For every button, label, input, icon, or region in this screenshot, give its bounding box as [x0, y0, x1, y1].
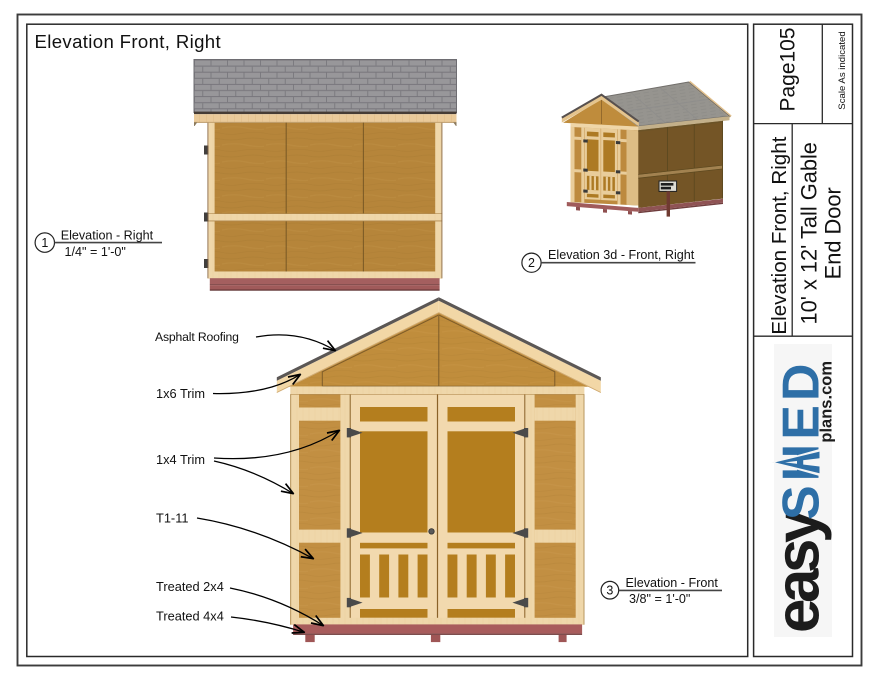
- svg-text:1x4 Trim: 1x4 Trim: [156, 452, 205, 467]
- svg-text:3/8" = 1'-0": 3/8" = 1'-0": [629, 592, 690, 606]
- svg-text:Treated 4x4: Treated 4x4: [156, 609, 224, 624]
- svg-text:1x6 Trim: 1x6 Trim: [156, 386, 205, 401]
- svg-text:10' x 12' Tall Gable: 10' x 12' Tall Gable: [797, 142, 822, 324]
- svg-text:Elevation 3d - Front, Right: Elevation 3d - Front, Right: [548, 248, 695, 262]
- svg-text:1: 1: [41, 236, 48, 250]
- svg-text:Page105: Page105: [777, 27, 800, 111]
- svg-text:2: 2: [528, 256, 535, 270]
- svg-text:Elevation Front, Right: Elevation Front, Right: [768, 136, 791, 334]
- svg-text:Elevation - Front: Elevation - Front: [626, 576, 719, 590]
- svg-text:plans.com: plans.com: [818, 361, 836, 443]
- svg-text:Scale As indicated: Scale As indicated: [837, 31, 848, 109]
- svg-text:3: 3: [606, 584, 613, 598]
- svg-text:easy: easy: [764, 508, 833, 633]
- svg-text:Elevation - Right: Elevation - Right: [61, 228, 154, 242]
- svg-text:T1-11: T1-11: [156, 511, 188, 526]
- svg-text:Elevation Front, Right: Elevation Front, Right: [35, 31, 222, 52]
- svg-text:End Door: End Door: [821, 187, 846, 279]
- svg-text:1/4" = 1'-0": 1/4" = 1'-0": [65, 245, 126, 259]
- svg-text:Treated 2x4: Treated 2x4: [156, 579, 224, 594]
- svg-text:Asphalt Roofing: Asphalt Roofing: [155, 330, 239, 344]
